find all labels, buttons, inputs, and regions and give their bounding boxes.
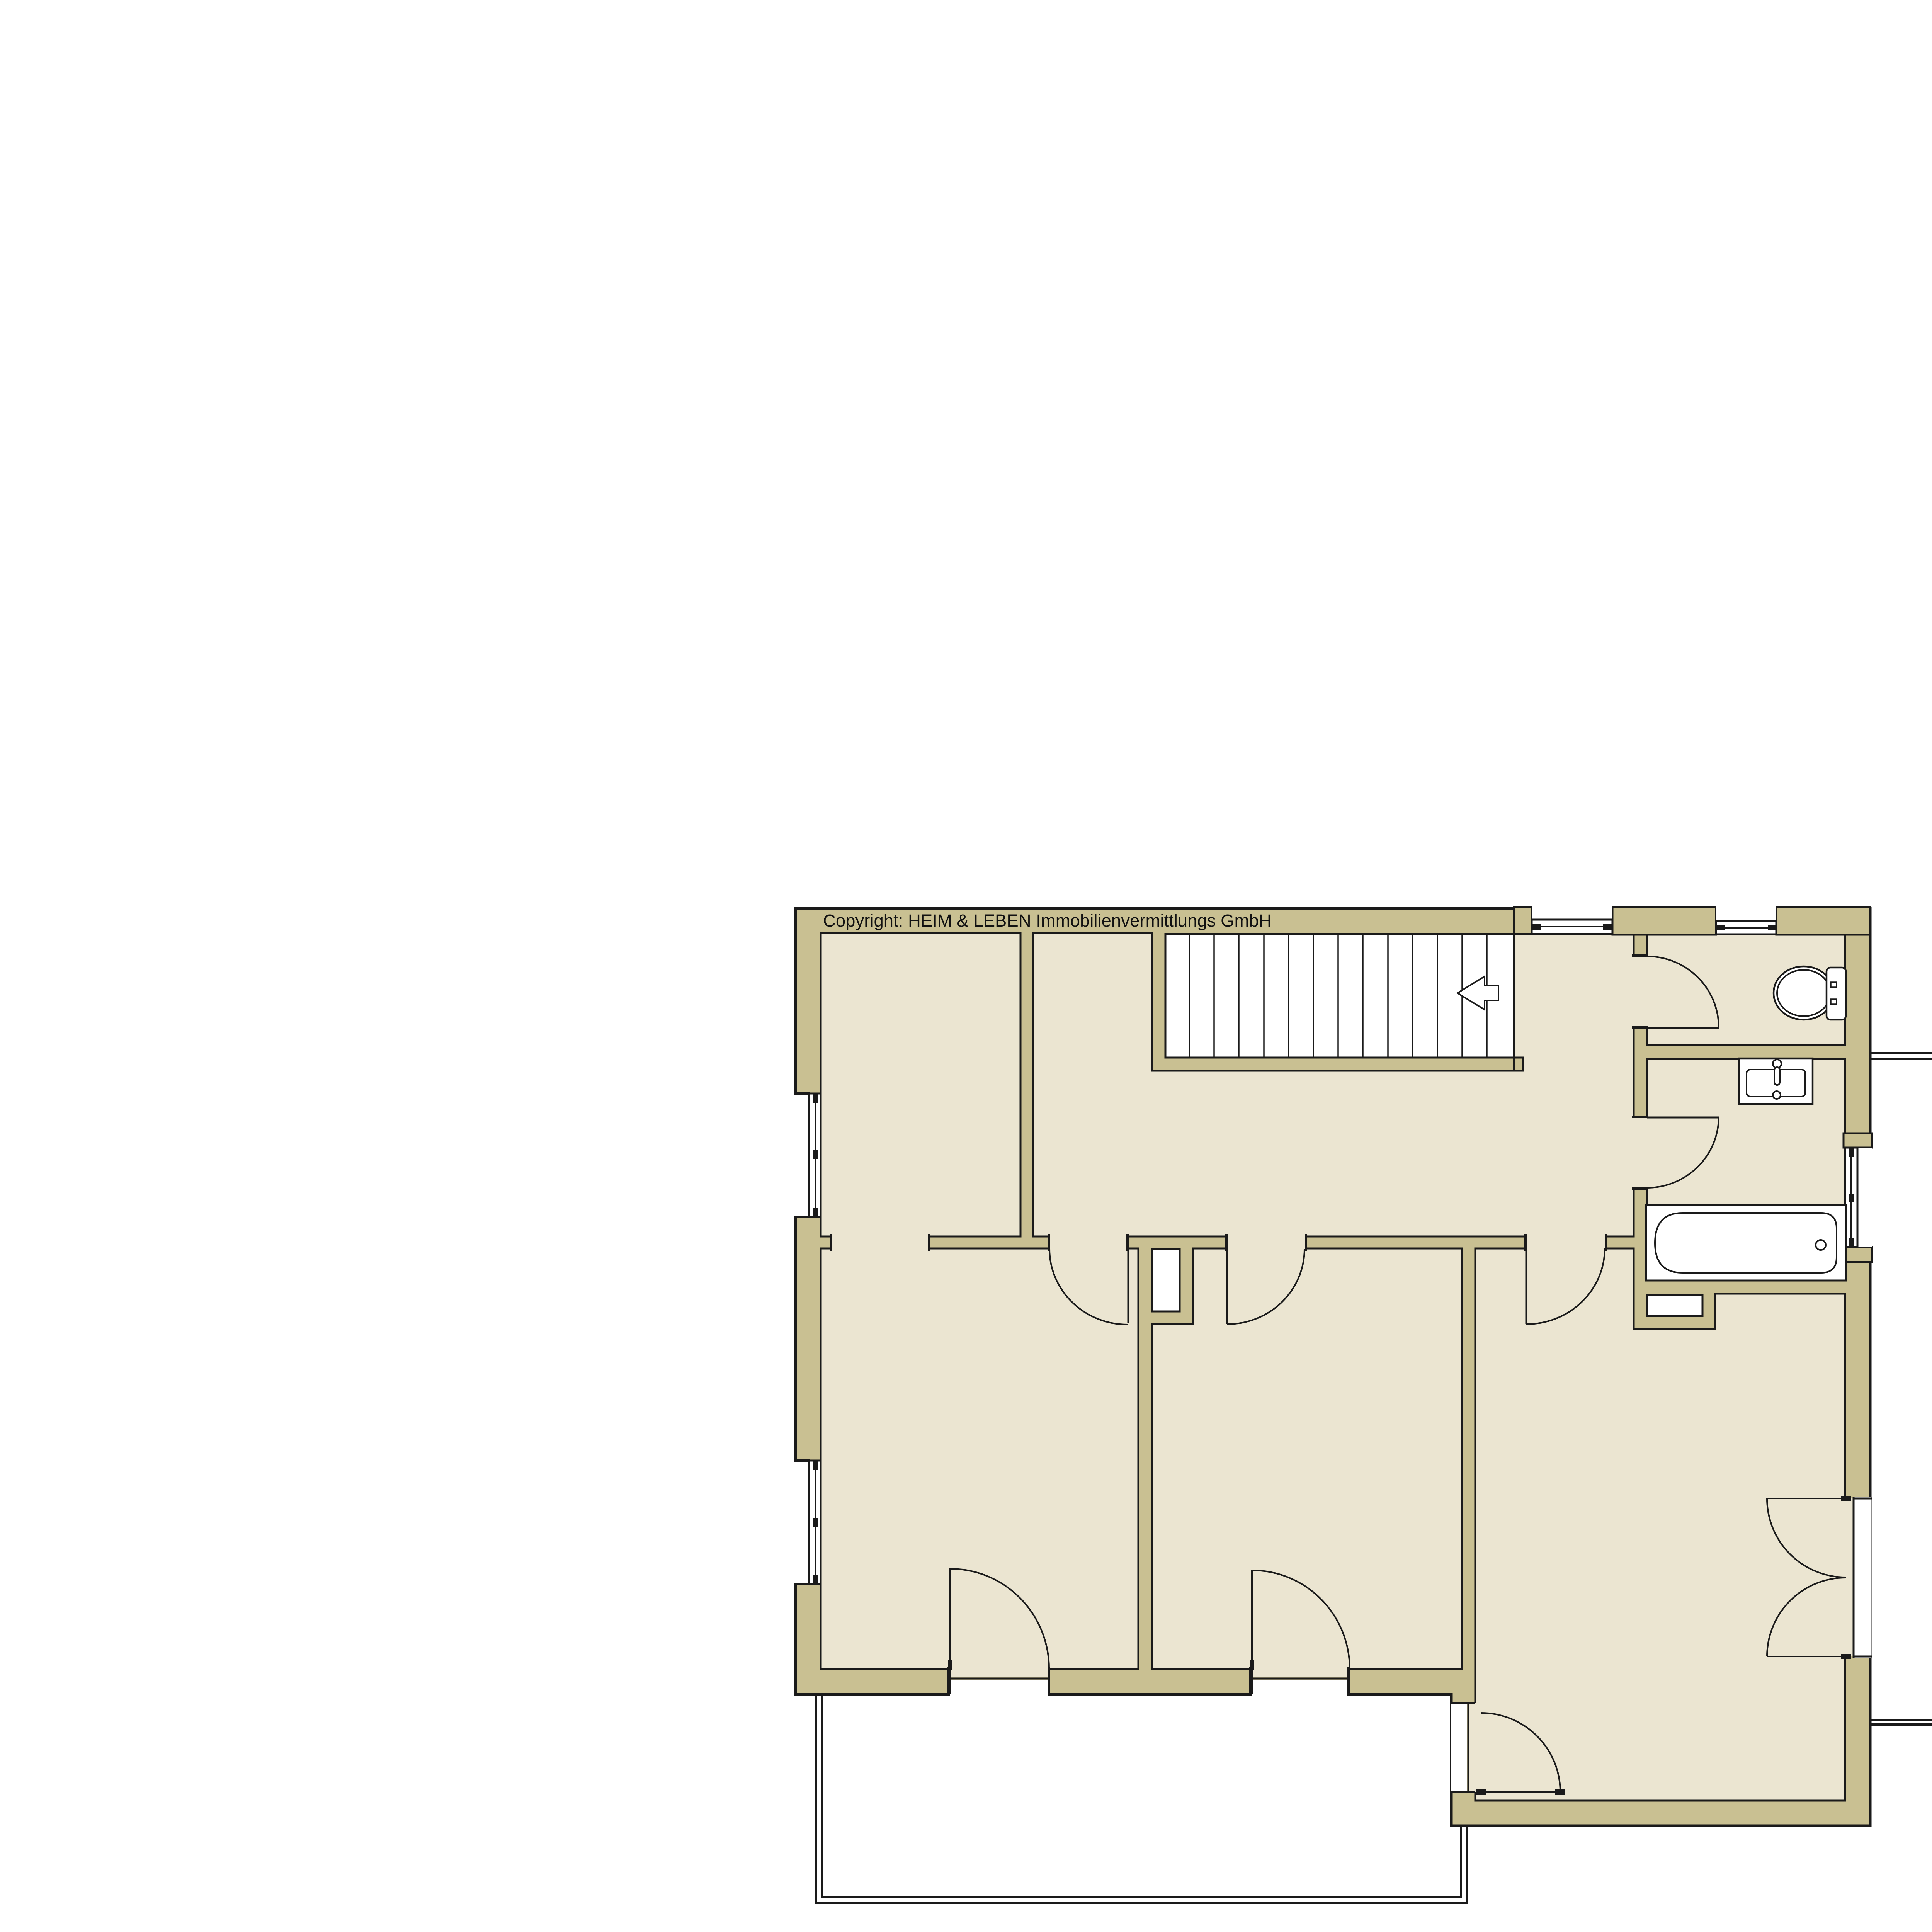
svg-text:Copyright: HEIM & LEBEN Immobi: Copyright: HEIM & LEBEN Immobilienvermit… [823, 911, 1272, 930]
